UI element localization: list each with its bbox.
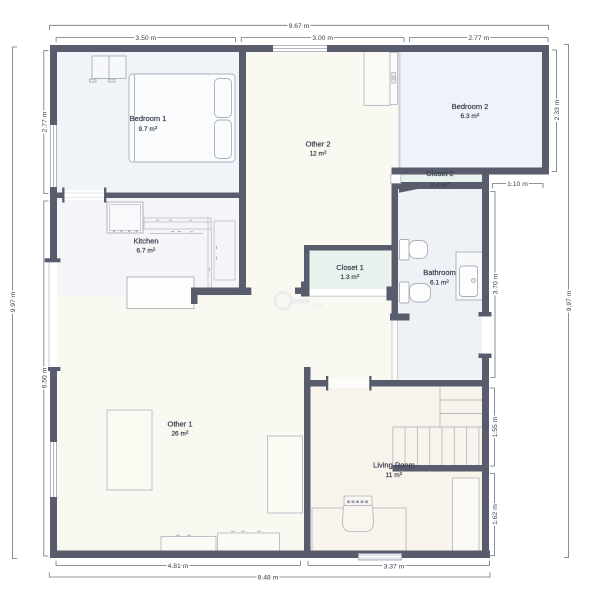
svg-text:3.00 m: 3.00 m — [312, 35, 333, 42]
svg-text:2.77 m: 2.77 m — [468, 35, 489, 42]
svg-text:Closet 2: Closet 2 — [426, 169, 454, 178]
svg-text:1.62 m: 1.62 m — [492, 504, 499, 525]
svg-text:Closet 1: Closet 1 — [336, 263, 364, 272]
svg-text:Other 1: Other 1 — [167, 420, 192, 429]
svg-text:3.37 m: 3.37 m — [384, 564, 405, 571]
svg-text:9.67 m: 9.67 m — [289, 23, 310, 30]
svg-text:Kitchen: Kitchen — [133, 237, 158, 246]
svg-text:9.97 m: 9.97 m — [10, 291, 17, 312]
svg-text:1.10 m: 1.10 m — [507, 181, 528, 188]
svg-text:2.33 m: 2.33 m — [554, 99, 561, 120]
svg-text:2.77 m: 2.77 m — [41, 111, 48, 132]
svg-text:1.55 m: 1.55 m — [492, 416, 499, 437]
svg-text:4.81 m: 4.81 m — [168, 563, 189, 570]
svg-text:3.50 m: 3.50 m — [135, 35, 156, 42]
svg-text:Bedroom 2: Bedroom 2 — [452, 102, 489, 111]
svg-text:Bathroom: Bathroom — [423, 268, 456, 277]
svg-text:Bedroom 1: Bedroom 1 — [130, 114, 167, 123]
svg-text:Other 2: Other 2 — [305, 140, 330, 149]
svg-text:3.70 m: 3.70 m — [493, 273, 500, 294]
svg-text:6.50 m: 6.50 m — [41, 367, 48, 388]
svg-text:9.97 m: 9.97 m — [566, 290, 573, 311]
svg-text:8.48 m: 8.48 m — [258, 575, 279, 582]
svg-text:Living Room: Living Room — [373, 461, 415, 470]
